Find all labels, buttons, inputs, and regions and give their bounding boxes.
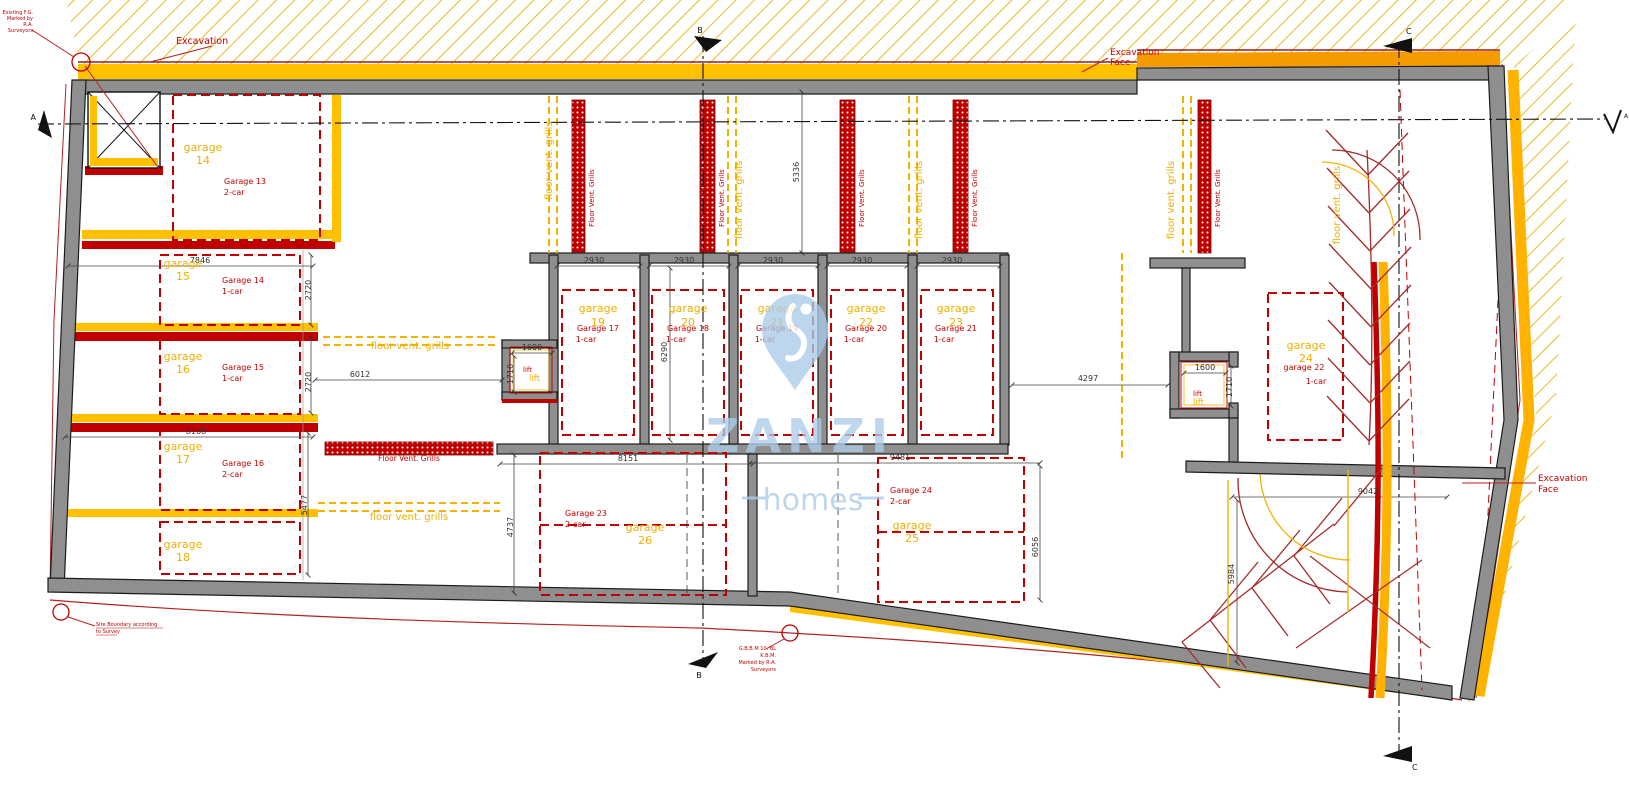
- dim-label: 1710: [506, 364, 515, 384]
- dim-label: 9042: [1358, 487, 1378, 496]
- garage-unit-num: 26: [638, 534, 652, 547]
- floor-plan-drawing: A A B B C C: [0, 0, 1629, 800]
- dim-label: 4297: [1078, 374, 1098, 383]
- dim-label: 2720: [304, 372, 313, 392]
- note-benchmark: Surveyors: [751, 667, 777, 673]
- garage-name: Garage 14: [222, 276, 264, 285]
- garage-unit: garage: [164, 440, 203, 453]
- garage-unit: garage: [937, 302, 976, 315]
- watermark-brand: ZANZI: [706, 409, 894, 463]
- garage-unit: garage: [579, 302, 618, 315]
- garage-size: 1-car: [666, 335, 687, 344]
- garage-unit-num: 18: [176, 551, 190, 564]
- garage-name: Garage 13: [224, 177, 266, 186]
- dim-label: 2930: [584, 256, 604, 265]
- note-benchmark: G.B.B.M 10. BL: [739, 646, 776, 652]
- garage-name: Garage 15: [222, 363, 264, 372]
- garage-name: Garage 24: [890, 486, 932, 495]
- garage-size: 1-car: [934, 335, 955, 344]
- garage-name: Garage 17: [577, 324, 619, 333]
- garage-size: 1-car: [1306, 377, 1327, 386]
- garage-unit: garage: [164, 538, 203, 551]
- section-b-letter: B: [696, 671, 702, 680]
- garage-name: garage 22: [1284, 363, 1325, 372]
- dim-label: 8151: [618, 454, 638, 463]
- garage-size: 2-car: [890, 497, 911, 506]
- lift-label-red: lift: [523, 366, 532, 374]
- garage-size: 2-car: [565, 520, 586, 529]
- garage-size: 2-car: [224, 188, 245, 197]
- vent-label-yellow: floor vent. grills: [734, 161, 745, 240]
- note-site-boundary: Site Boundary according: [96, 622, 157, 628]
- dim-label: 4737: [506, 517, 515, 537]
- lift-label-yellow: lift: [529, 374, 541, 384]
- excavation-label: Excavation: [176, 36, 228, 47]
- vent-label-red: Floor Vent. Grills: [971, 169, 979, 227]
- note-benchmark: K.B.M.: [760, 653, 776, 659]
- section-c-letter: C: [1406, 27, 1412, 36]
- excavation-face-label: Face: [1110, 58, 1131, 68]
- dim-label: 5336: [792, 162, 801, 182]
- dim-label: 6290: [660, 342, 669, 362]
- vent-label-yellow: floor vent. grills: [1332, 166, 1343, 245]
- plan-svg: A A B B C C: [0, 0, 1629, 800]
- vent-label-yellow: floor vent. grills: [1166, 161, 1177, 240]
- garage-name: Garage 18: [667, 324, 709, 333]
- survey-marker: [53, 604, 69, 620]
- vent-label-red: Floor Vent. Grills: [718, 169, 726, 227]
- garage-unit: garage: [626, 521, 665, 534]
- vent-label-yellow: floor vent. grills: [914, 161, 925, 240]
- dim-label: 2930: [674, 256, 694, 265]
- garage-unit-num: 16: [176, 363, 190, 376]
- dim-label: 1710: [1225, 377, 1234, 397]
- vent-label-yellow: floor vent. grills: [370, 512, 449, 523]
- garage-unit: garage: [164, 257, 203, 270]
- garage-name: Garage 20: [845, 324, 887, 333]
- section-a-flag-right: [1604, 110, 1621, 132]
- dim-label: 1600: [522, 343, 542, 352]
- dim-label: 6012: [350, 370, 370, 379]
- excavation-face-label: Excavation: [1110, 48, 1159, 58]
- dim-label: 2930: [942, 256, 962, 265]
- dim-label: 2930: [852, 256, 872, 265]
- garage-unit: garage: [1287, 339, 1326, 352]
- garage-size: 1-car: [576, 335, 597, 344]
- garage-unit: garage: [184, 141, 223, 154]
- section-b-letter: B: [697, 26, 703, 35]
- garage-unit-num: 17: [176, 453, 190, 466]
- section-c-letter: C: [1412, 763, 1418, 772]
- walls: [48, 66, 1518, 700]
- dim-label: 2720: [304, 280, 313, 300]
- note-benchmark: Marked by R.A.: [738, 660, 776, 666]
- vent-label-yellow: floor vent. grills: [544, 121, 555, 200]
- dim-label: 8168: [186, 427, 206, 436]
- note-existing-fg: Surveyors: [8, 28, 34, 34]
- garage-size: 1-car: [222, 287, 243, 296]
- garage-size: 1-car: [222, 374, 243, 383]
- dim-label: 5477: [300, 495, 309, 515]
- section-a-letter: A: [1624, 113, 1629, 120]
- garage-name: Garage 16: [222, 459, 264, 468]
- excavation-face-label: Excavation: [1538, 474, 1587, 484]
- garage-name: Garage 21: [935, 324, 977, 333]
- garage-size: 2-car: [222, 470, 243, 479]
- garage-unit-num: 14: [196, 154, 210, 167]
- excavation-face-label: Face: [1538, 485, 1559, 495]
- vent-label-yellow: floor vent. grills: [371, 341, 450, 352]
- dim-label: 2930: [763, 256, 783, 265]
- vent-label-red: Floor Vent. Grills: [378, 454, 440, 463]
- garage-unit-num: 25: [905, 532, 919, 545]
- dim-label: 5984: [1227, 564, 1236, 584]
- dim-label: 6056: [1031, 537, 1040, 557]
- note-site-boundary: to Survey: [96, 629, 120, 635]
- garage-size: 1-car: [844, 335, 865, 344]
- garage-unit-num: 15: [176, 270, 190, 283]
- section-a-letter: A: [31, 113, 37, 122]
- dim-label: 1600: [1195, 363, 1215, 372]
- lift-shafts: [502, 347, 1227, 408]
- vent-label-red: Floor Vent. Grills: [1214, 169, 1222, 227]
- vent-label-red: Floor Vent. Grills: [858, 169, 866, 227]
- lift-label-yellow: lift: [1193, 398, 1205, 408]
- garage-name: Garage 23: [565, 509, 607, 518]
- vent-label-red: Floor Vent. Grills: [588, 169, 596, 227]
- section-c-flag-bottom: [1383, 746, 1412, 762]
- garage-unit: garage: [669, 302, 708, 315]
- watermark-tagline: homes: [763, 483, 864, 518]
- garage-unit: garage: [893, 519, 932, 532]
- garage-unit: garage: [847, 302, 886, 315]
- garage-unit: garage: [164, 350, 203, 363]
- lift-label-red: lift: [1193, 390, 1202, 398]
- section-b-flag-bottom: [688, 652, 718, 668]
